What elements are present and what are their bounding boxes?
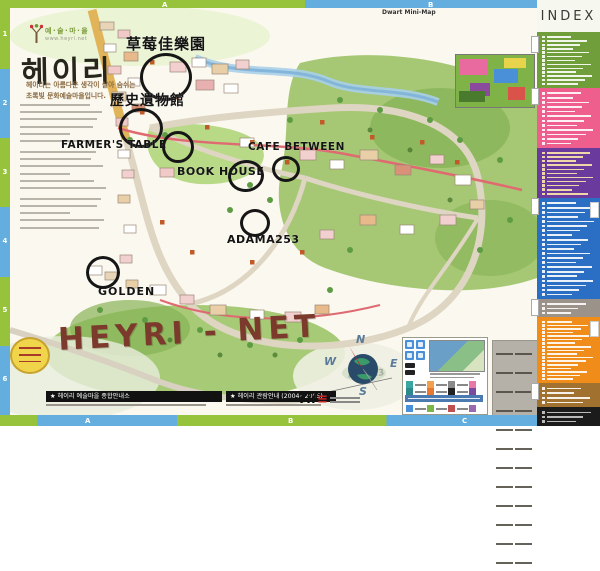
index-section-pink xyxy=(537,88,600,148)
legend-chip-green xyxy=(427,405,434,412)
annotation-adama253: ADAMA253 xyxy=(227,233,300,246)
index-section-brown xyxy=(537,383,600,407)
grid-letter-bottom-c: C xyxy=(462,417,467,425)
index-subsection-marker xyxy=(590,321,599,337)
legend-chip-pink xyxy=(469,381,476,388)
info-text-panel xyxy=(492,340,541,419)
grid-letter-bottom-a: A xyxy=(85,417,90,425)
heyri-tree-logo-icon xyxy=(30,24,43,43)
legend-parking-icon xyxy=(416,340,425,349)
publisher-text-lines xyxy=(330,397,360,405)
footer-info-bar-1: ★ 헤이리 예술마을 종합안내소 xyxy=(46,391,222,402)
compass-west-label: W xyxy=(324,355,336,368)
index-edge-tab xyxy=(531,299,539,316)
grid-letter-top-b: B xyxy=(428,1,433,9)
tagline-line2: 초록빛 문화예술마을입니다. xyxy=(26,92,106,100)
annotation-farmers-table: FARMER'S TABLE xyxy=(61,139,167,151)
annotation-circle-cafe-between xyxy=(272,156,300,182)
grid-number-2: 2 xyxy=(0,69,10,138)
legend-chip-darkteal xyxy=(406,388,413,395)
legend-chip-gray xyxy=(448,381,455,388)
annotation-strawberry-park: 草莓佳樂園 xyxy=(126,33,206,54)
grid-ruler-left: 123456 xyxy=(0,0,10,415)
annotation-circle-golden xyxy=(86,256,120,289)
minimap-zone-pink xyxy=(460,59,488,75)
legend-photo-thumbnail xyxy=(429,340,485,372)
minimap-zone-yellow xyxy=(504,58,526,68)
minimap-zone-red xyxy=(508,87,525,100)
annotation-cafe-between: CAFE BETWEEN xyxy=(248,141,345,153)
site-url: www.heyri.net xyxy=(45,36,87,42)
index-section-green xyxy=(537,32,600,88)
grid-ruler-bottom: A B C xyxy=(0,415,537,426)
grid-letter-bottom-b: B xyxy=(288,417,293,425)
yellow-sticker-badge xyxy=(10,337,50,374)
index-sections xyxy=(537,32,600,426)
index-section-purple xyxy=(537,148,600,198)
grid-number-4: 4 xyxy=(0,207,10,276)
index-subsection-marker xyxy=(590,202,599,218)
index-edge-tab xyxy=(531,88,539,105)
index-section-blue xyxy=(537,198,600,299)
grid-number-6: 6 xyxy=(0,346,10,415)
index-title: INDEX xyxy=(537,0,600,32)
legend-chip-orange xyxy=(427,381,434,388)
grid-letter-top-a: A xyxy=(162,1,167,9)
compass-south-label: S xyxy=(359,385,367,398)
legend-chip-teal xyxy=(406,381,413,388)
index-section-black xyxy=(537,407,600,426)
minimap-zone-darkgreen xyxy=(459,91,485,102)
legend-chip-blue xyxy=(406,405,413,412)
index-edge-tab xyxy=(531,383,539,400)
index-edge-tab xyxy=(531,36,539,53)
grid-number-1: 1 xyxy=(0,0,10,69)
legend-chip-red xyxy=(448,405,455,412)
index-edge-tab xyxy=(531,198,539,215)
legend-chip-black xyxy=(448,388,455,395)
legend-chip-darkorange xyxy=(427,388,434,395)
district-minimap xyxy=(455,54,535,108)
legend-title-band xyxy=(405,395,483,402)
map-legend-box xyxy=(402,337,488,415)
index-panel: INDEX xyxy=(537,0,600,426)
legend-photo-icon xyxy=(405,340,414,349)
legend-info-icon xyxy=(405,351,414,360)
compass-east-label: E xyxy=(390,357,398,370)
legend-chip-violet xyxy=(469,405,476,412)
legend-caption-line xyxy=(430,377,474,379)
legend-chip-purple xyxy=(469,388,476,395)
legend-caption-line xyxy=(430,373,480,375)
footer-info-subline-1 xyxy=(46,404,206,406)
legend-black-marker xyxy=(405,363,415,368)
grid-ruler-top: A B xyxy=(10,0,537,8)
publisher-logo: Tif≡ xyxy=(298,392,328,407)
index-section-gray xyxy=(537,299,600,317)
index-section-orange xyxy=(537,317,600,383)
annotation-circle-adama253 xyxy=(240,209,270,237)
annotation-history-museum: 歷史遺物館 xyxy=(110,90,185,110)
grid-number-3: 3 xyxy=(0,138,10,207)
annotation-circle-farmers-table xyxy=(162,131,194,163)
minimap-zone-blue xyxy=(494,69,518,83)
village-label: 예·술·마·을 xyxy=(45,26,89,36)
compass-north-label: N xyxy=(356,333,365,346)
intro-paragraph xyxy=(20,104,110,234)
minimap-label: Dwart Mini-Map xyxy=(382,9,436,16)
legend-black-marker xyxy=(405,370,415,375)
grid-number-5: 5 xyxy=(0,277,10,346)
legend-toilet-icon xyxy=(416,351,425,360)
tagline-line1: 헤이리는 아름다운 생각이 살아 숨쉬는 xyxy=(26,81,136,89)
